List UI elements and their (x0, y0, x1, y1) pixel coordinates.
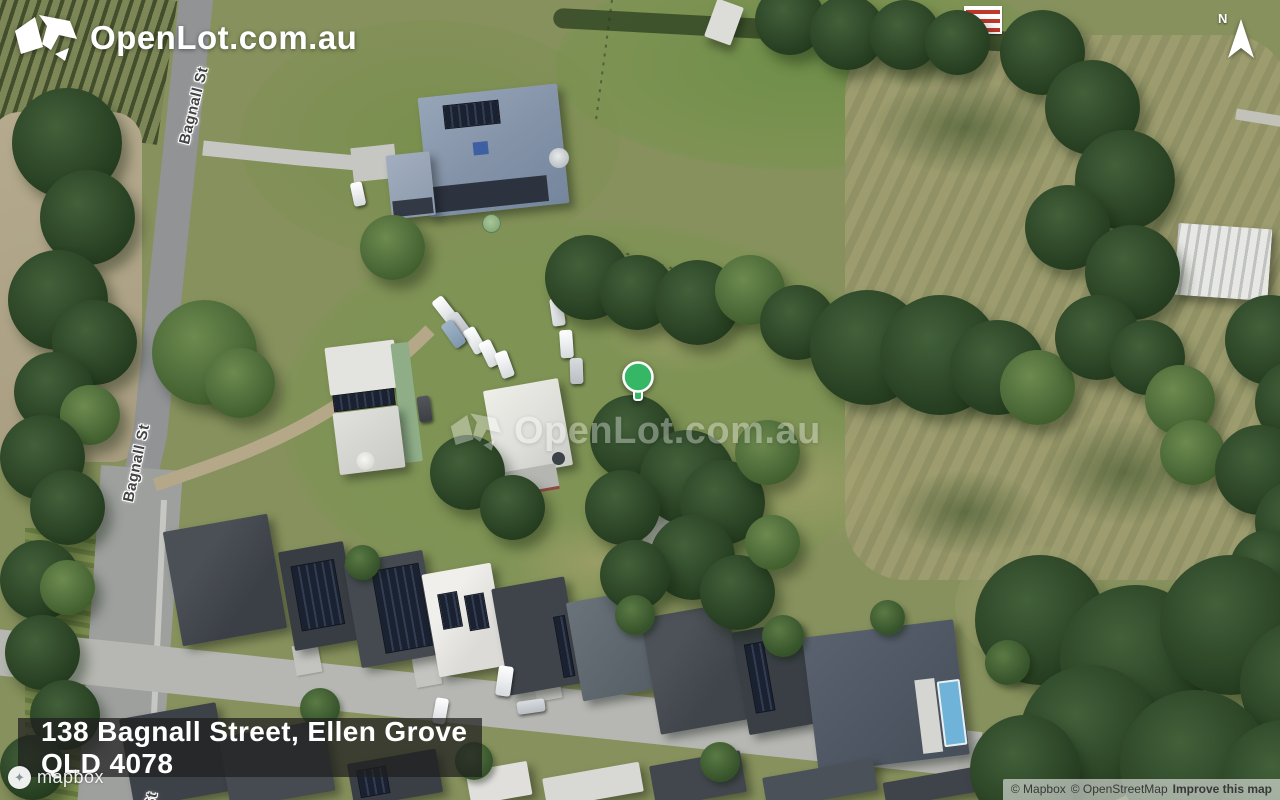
property-address: 138 Bagnall Street, Ellen Grove QLD 4078 (41, 716, 482, 780)
tree (5, 615, 80, 690)
mapbox-wordmark: mapbox (37, 767, 104, 788)
water-tank (482, 214, 501, 233)
watermark-text: OpenLot.com.au (514, 410, 821, 453)
tank (552, 452, 565, 465)
skylight (473, 141, 489, 155)
bush (345, 545, 380, 580)
tree (925, 10, 990, 75)
property-marker[interactable] (619, 360, 657, 406)
solar-panels (437, 591, 463, 630)
tree (205, 348, 275, 418)
roof (324, 340, 399, 396)
tree (30, 470, 105, 545)
tree (40, 560, 95, 615)
bush (870, 600, 905, 635)
shed-building (1174, 223, 1273, 301)
solar-panels (290, 559, 345, 632)
openlot-australia-icon (450, 412, 502, 452)
openlot-australia-icon (14, 14, 78, 62)
mapbox-logo[interactable]: ✦ mapbox (8, 766, 104, 789)
bush (700, 742, 740, 782)
estate-roof-pool-house (802, 619, 969, 773)
north-indicator: N (1218, 10, 1268, 62)
satellite-map-canvas[interactable]: Bagnall St Bagnall St Bagnall St OpenLot… (0, 0, 1280, 800)
tree (480, 475, 545, 540)
mapbox-star-icon: ✦ (8, 766, 31, 789)
tree (745, 515, 800, 570)
parked-car (570, 358, 584, 384)
openlot-logo: OpenLot.com.au (14, 14, 357, 62)
solar-panels (464, 592, 490, 631)
osm-copyright-link[interactable]: © OpenStreetMap (1071, 782, 1168, 796)
shed-building (324, 337, 431, 477)
openlot-watermark: OpenLot.com.au (450, 410, 821, 453)
estate-roof (163, 514, 288, 647)
tree (360, 215, 425, 280)
improve-map-link[interactable]: Improve this map (1173, 782, 1272, 796)
satellite-dish (549, 148, 569, 168)
mapbox-copyright-link[interactable]: © Mapbox (1011, 782, 1066, 796)
north-arrow-icon (1226, 18, 1256, 60)
bush (762, 615, 804, 657)
map-attribution: © Mapbox © OpenStreetMap Improve this ma… (1003, 779, 1280, 800)
logo-text: OpenLot.com.au (90, 19, 357, 57)
tree (585, 470, 660, 545)
bush (985, 640, 1030, 685)
parked-car (559, 330, 574, 359)
bush (615, 595, 655, 635)
